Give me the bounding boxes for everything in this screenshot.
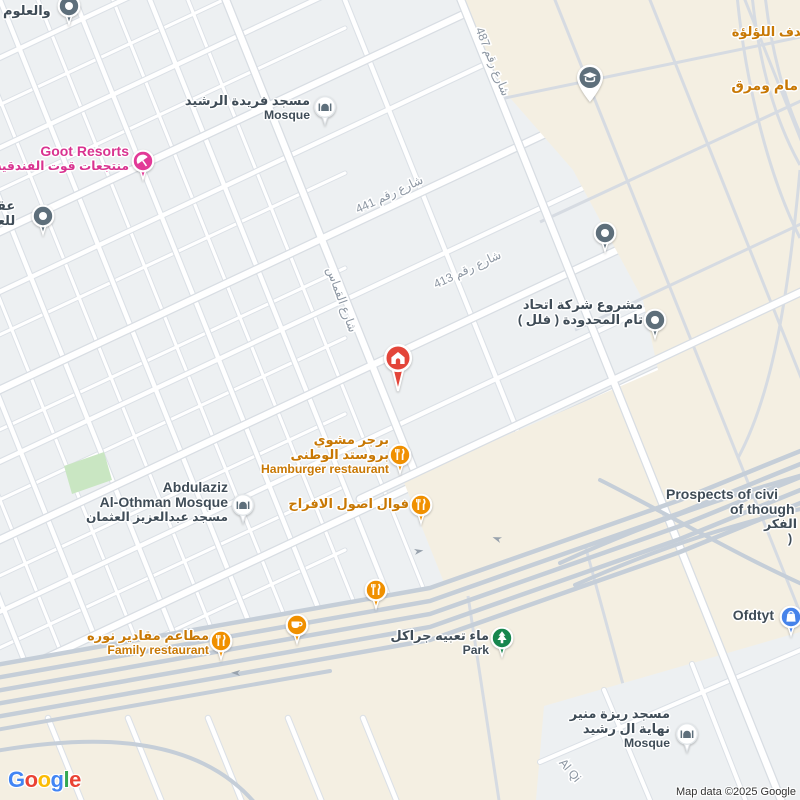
poi-label-park[interactable]: ماء تعبيه جراكل Park <box>390 628 489 658</box>
poi-label-aqar[interactable]: عقو للعق <box>0 198 15 228</box>
mosque-icon <box>677 724 698 752</box>
generic-poi-pin[interactable] <box>30 203 56 242</box>
fork-knife-icon <box>211 631 232 659</box>
restaurant-pin[interactable] <box>387 442 413 481</box>
google-logo-letter: G <box>8 767 25 792</box>
poi-label-mashrou[interactable]: مشروع شركة اتحاد تام المحدودة ( فلل ) <box>518 297 643 327</box>
google-logo-letter: o <box>25 767 38 792</box>
poi-label-ofdtyt[interactable]: Ofdtyt <box>733 608 774 623</box>
poi-label-reza-mosque[interactable]: مسجد ريزة منير نهاية ال رشيد Mosque <box>570 706 670 751</box>
generic-poi-icon <box>595 223 616 251</box>
shopping-pin[interactable] <box>778 604 800 643</box>
shopping-bag-icon <box>781 607 800 635</box>
poi-label-burger-restaurant[interactable]: برجر مشوي بروستد الوطنى Hamburger restau… <box>261 432 389 477</box>
poi-label-sadaf[interactable]: صدف اللؤلؤة <box>732 24 800 39</box>
fork-knife-icon <box>390 445 411 473</box>
fork-knife-icon <box>366 580 387 608</box>
property-marker[interactable] <box>378 341 418 398</box>
poi-label-maqadeer[interactable]: مطاعم مقادير نوره Family restaurant <box>87 628 209 658</box>
mosque-pin[interactable] <box>230 492 256 531</box>
restaurant-pin[interactable] <box>408 492 434 531</box>
generic-poi-icon <box>33 206 54 234</box>
generic-poi-icon <box>645 310 666 338</box>
poi-label-abdulaziz-mosque[interactable]: Abdulaziz Al-Othman Mosque مسجد عبدالعزي… <box>86 480 228 525</box>
poi-label-aloloum[interactable]: والعلوم <box>3 3 51 18</box>
school-pin[interactable] <box>573 62 607 109</box>
poi-label-goot-resorts[interactable]: Goot Resorts منتجعات قوت الفندقية <box>0 144 129 174</box>
mosque-pin[interactable] <box>674 721 700 760</box>
generic-poi-pin[interactable] <box>56 0 82 32</box>
graduation-cap-icon <box>577 65 603 103</box>
google-logo-letter: g <box>51 767 64 792</box>
google-logo-letter: o <box>38 767 51 792</box>
mosque-pin[interactable] <box>312 94 338 133</box>
mosque-icon <box>315 97 336 125</box>
poi-label-mamwamaraq[interactable]: مام ومرق <box>731 78 798 93</box>
restaurant-pin[interactable] <box>363 577 389 616</box>
map-attribution: Map data ©2025 Google <box>676 786 796 798</box>
map-viewport[interactable]: شارع رقم 487 شارع رقم 441 شارع رقم 413 ش… <box>0 0 800 800</box>
mosque-icon <box>233 495 254 523</box>
poi-label-fawal[interactable]: فوال اصول الافراح <box>288 496 409 511</box>
map-canvas: شارع رقم 487 شارع رقم 441 شارع رقم 413 ش… <box>0 0 800 800</box>
resort-pin[interactable] <box>130 148 156 187</box>
poi-label-prospects[interactable]: Prospects of civi of though الفكر ) <box>666 487 797 547</box>
tree-icon <box>492 628 513 656</box>
fork-knife-icon <box>411 495 432 523</box>
coffee-cup-icon <box>287 615 308 643</box>
google-logo[interactable]: Google <box>8 767 81 793</box>
cafe-pin[interactable] <box>284 612 310 651</box>
house-icon <box>385 345 411 391</box>
poi-label-farida-mosque[interactable]: مسجد فريدة الرشيد Mosque <box>185 93 310 123</box>
umbrella-icon <box>133 151 154 179</box>
generic-poi-icon <box>59 0 80 24</box>
generic-poi-pin[interactable] <box>642 307 668 346</box>
generic-poi-pin[interactable] <box>592 220 618 259</box>
park-pin[interactable] <box>489 625 515 664</box>
google-logo-letter: e <box>69 767 81 792</box>
restaurant-pin[interactable] <box>208 628 234 667</box>
